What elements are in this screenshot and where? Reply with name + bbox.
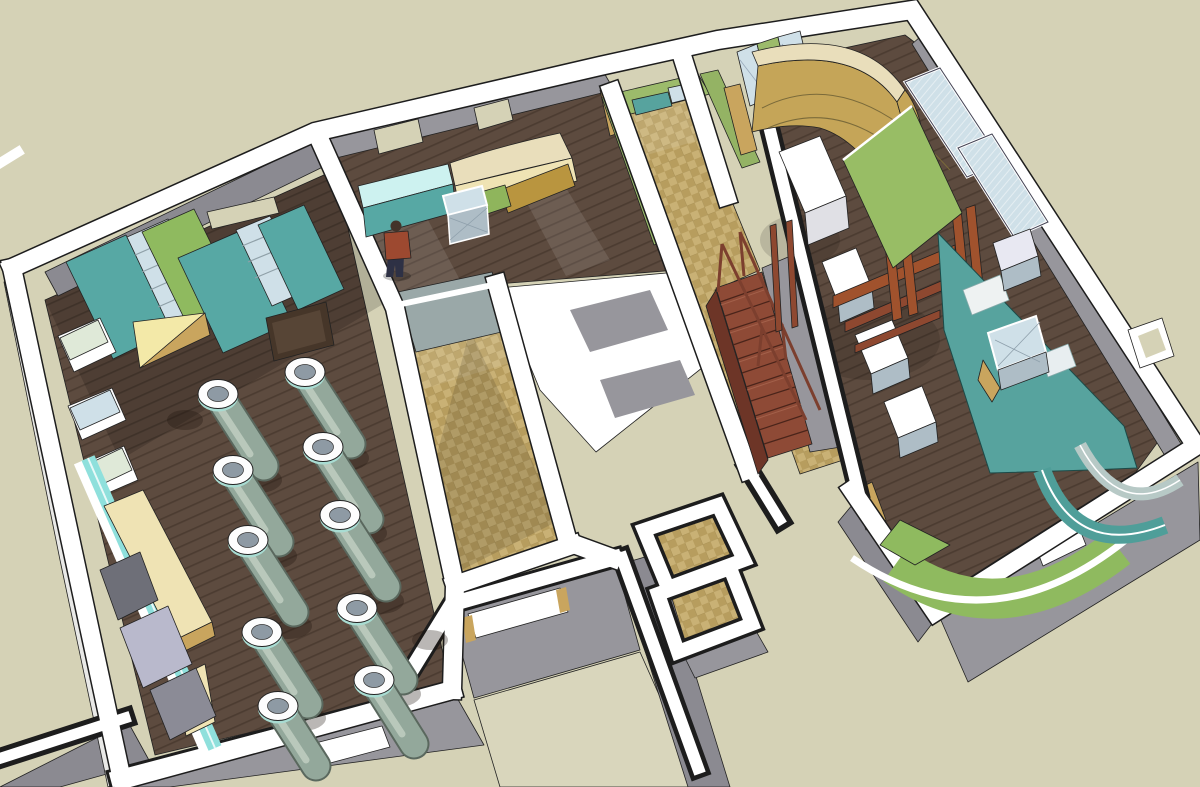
render-viewport	[0, 0, 1200, 787]
person-torso	[384, 231, 411, 260]
floorplan-3d-scene	[0, 0, 1200, 787]
glass-display-cube	[443, 186, 489, 244]
person-head	[391, 221, 402, 232]
